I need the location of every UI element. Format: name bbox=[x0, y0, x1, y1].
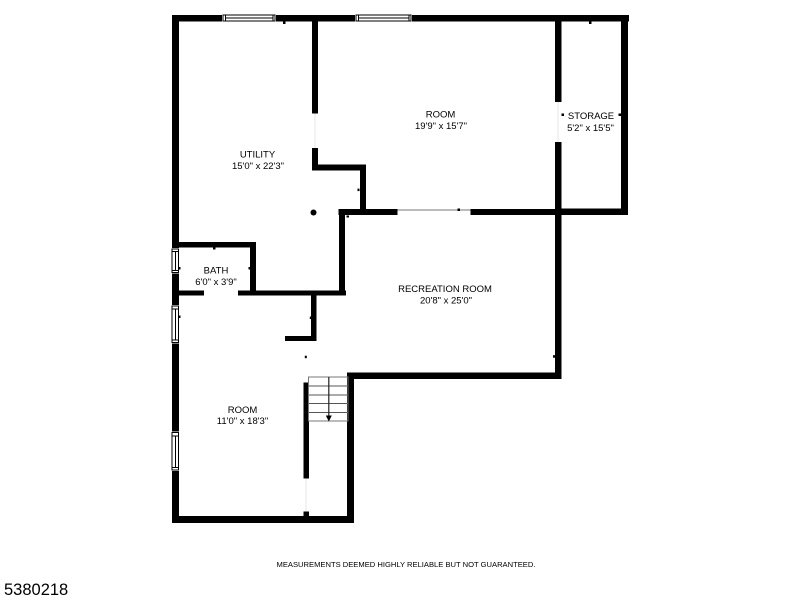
svg-text:MEASUREMENTS DEEMED HIGHLY REL: MEASUREMENTS DEEMED HIGHLY RELIABLE BUT … bbox=[277, 560, 536, 569]
svg-text:11'0" x 18'3": 11'0" x 18'3" bbox=[217, 416, 268, 427]
svg-text:5380218: 5380218 bbox=[4, 581, 68, 599]
svg-text:20'8" x 25'0": 20'8" x 25'0" bbox=[420, 296, 472, 307]
svg-text:ROOM: ROOM bbox=[426, 110, 456, 121]
svg-text:RECREATION ROOM: RECREATION ROOM bbox=[398, 284, 492, 295]
svg-text:5'2" x 15'5": 5'2" x 15'5" bbox=[567, 123, 614, 134]
svg-text:19'9" x 15'7": 19'9" x 15'7" bbox=[415, 121, 467, 132]
svg-text:15'0" x 22'3": 15'0" x 22'3" bbox=[232, 161, 284, 172]
svg-text:STORAGE: STORAGE bbox=[568, 111, 614, 122]
svg-text:UTILITY: UTILITY bbox=[240, 150, 276, 161]
svg-text:BATH: BATH bbox=[204, 266, 229, 277]
svg-text:6'0" x 3'9": 6'0" x 3'9" bbox=[195, 277, 237, 288]
svg-text:ROOM: ROOM bbox=[228, 405, 258, 416]
